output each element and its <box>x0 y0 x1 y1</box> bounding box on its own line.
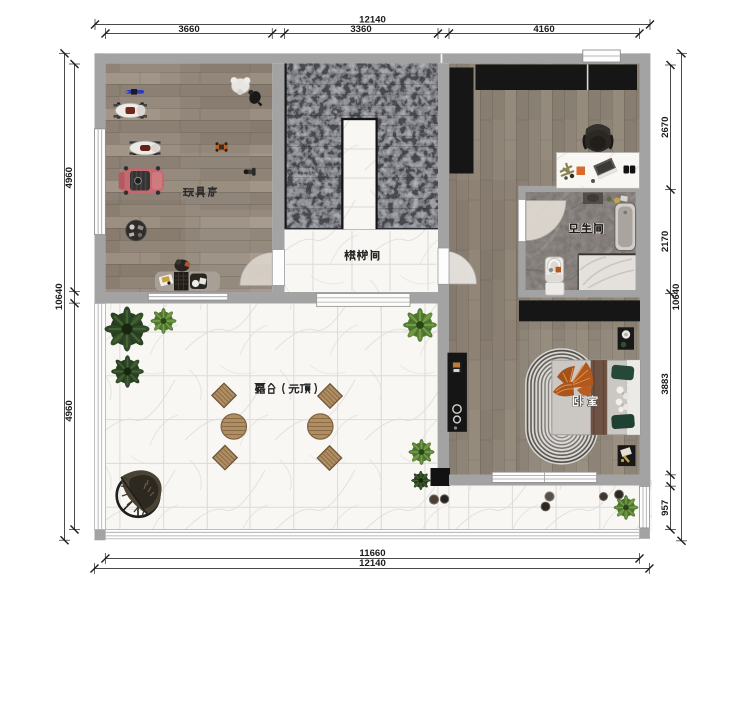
svg-text:4960: 4960 <box>64 400 75 421</box>
svg-text:4160: 4160 <box>533 24 554 35</box>
svg-text:10640: 10640 <box>671 284 682 311</box>
svg-text:4960: 4960 <box>64 167 75 188</box>
svg-text:3660: 3660 <box>178 24 199 35</box>
svg-text:12140: 12140 <box>359 558 386 569</box>
svg-text:2170: 2170 <box>660 231 671 252</box>
svg-text:3883: 3883 <box>660 373 671 394</box>
svg-text:2670: 2670 <box>660 117 671 138</box>
svg-text:10640: 10640 <box>54 283 65 310</box>
svg-text:957: 957 <box>660 500 671 516</box>
svg-text:3360: 3360 <box>350 24 371 35</box>
